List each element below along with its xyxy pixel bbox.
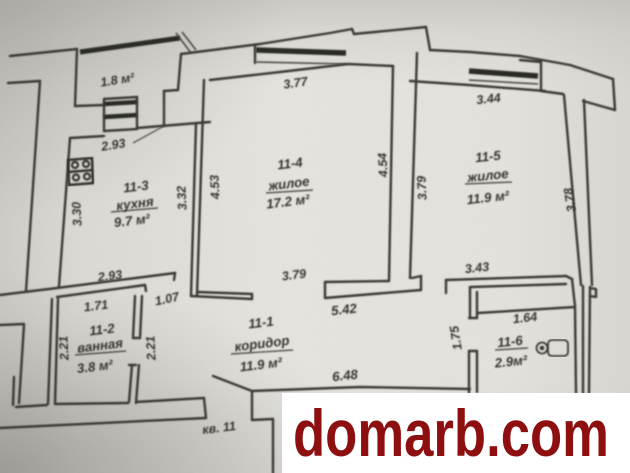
svg-text:5.42: 5.42 — [330, 301, 358, 319]
svg-text:3.44: 3.44 — [476, 91, 502, 107]
svg-text:6.48: 6.48 — [331, 367, 359, 385]
svg-text:11-1: 11-1 — [247, 314, 274, 332]
svg-text:3.79: 3.79 — [414, 175, 429, 200]
svg-text:11-4: 11-4 — [276, 154, 304, 172]
svg-text:1.64: 1.64 — [512, 310, 538, 326]
svg-text:11-3: 11-3 — [122, 177, 150, 195]
svg-text:3.30: 3.30 — [69, 201, 84, 226]
svg-text:3.79: 3.79 — [281, 267, 307, 284]
svg-text:domarb.com: domarb.com — [293, 396, 609, 470]
svg-text:11-6: 11-6 — [497, 333, 525, 351]
svg-text:11-5: 11-5 — [475, 148, 503, 166]
svg-text:1.71: 1.71 — [83, 298, 109, 315]
svg-text:2.21: 2.21 — [143, 335, 158, 361]
svg-text:2.21: 2.21 — [56, 335, 71, 361]
svg-text:3.32: 3.32 — [174, 185, 189, 210]
svg-text:4.53: 4.53 — [207, 174, 222, 200]
svg-text:3.43: 3.43 — [464, 260, 490, 276]
svg-text:4.54: 4.54 — [375, 152, 390, 178]
